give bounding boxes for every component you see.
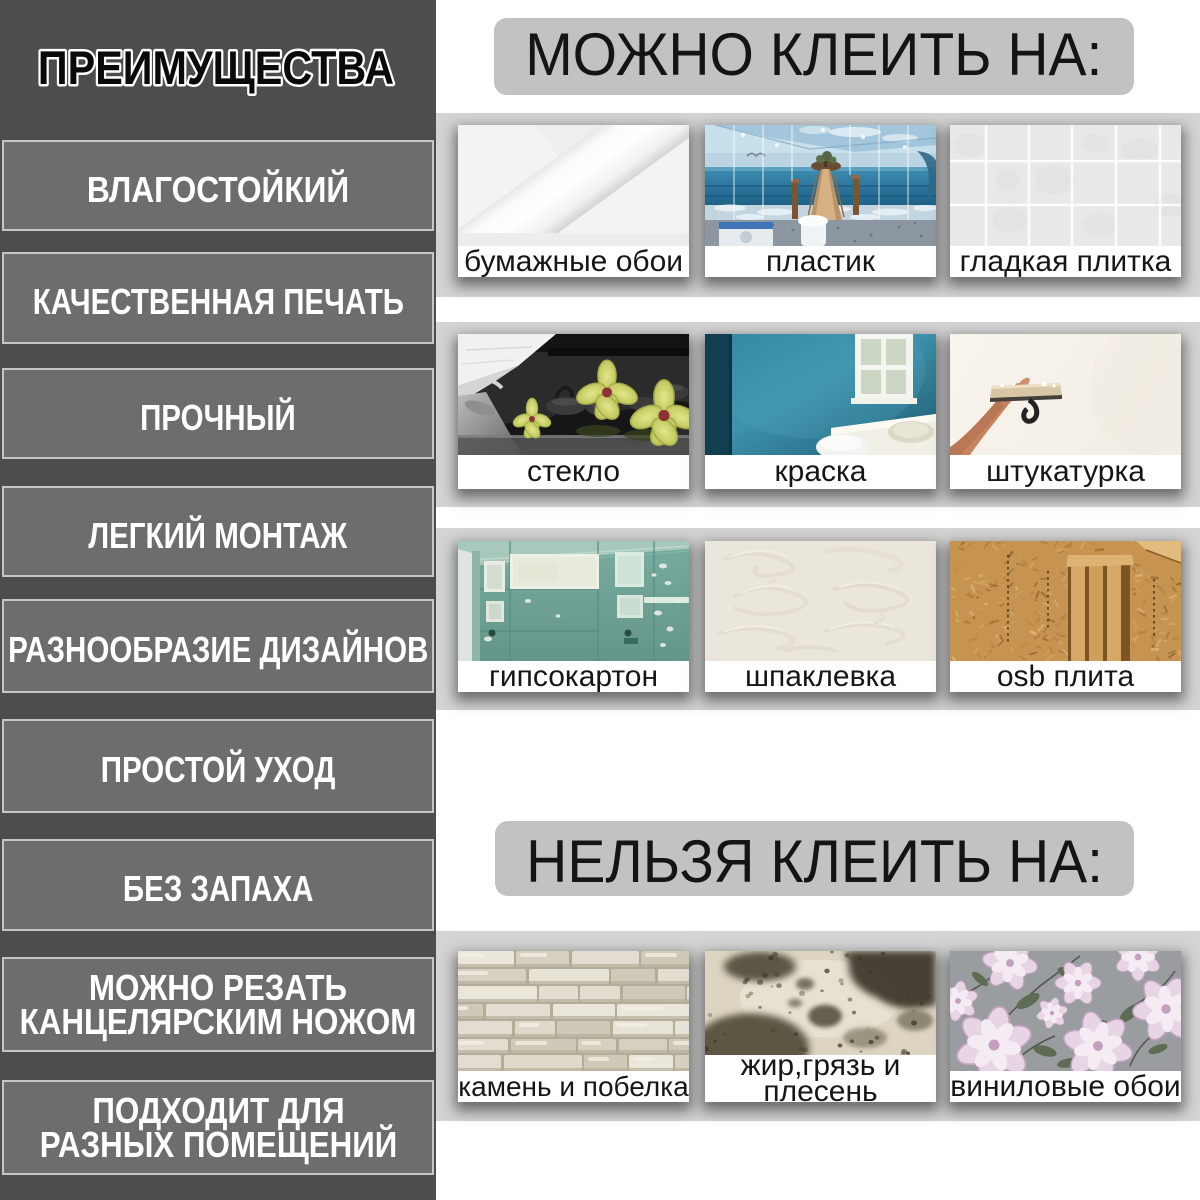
svg-text:ПРЕИМУЩЕСТВА: ПРЕИМУЩЕСТВА <box>38 43 394 95</box>
